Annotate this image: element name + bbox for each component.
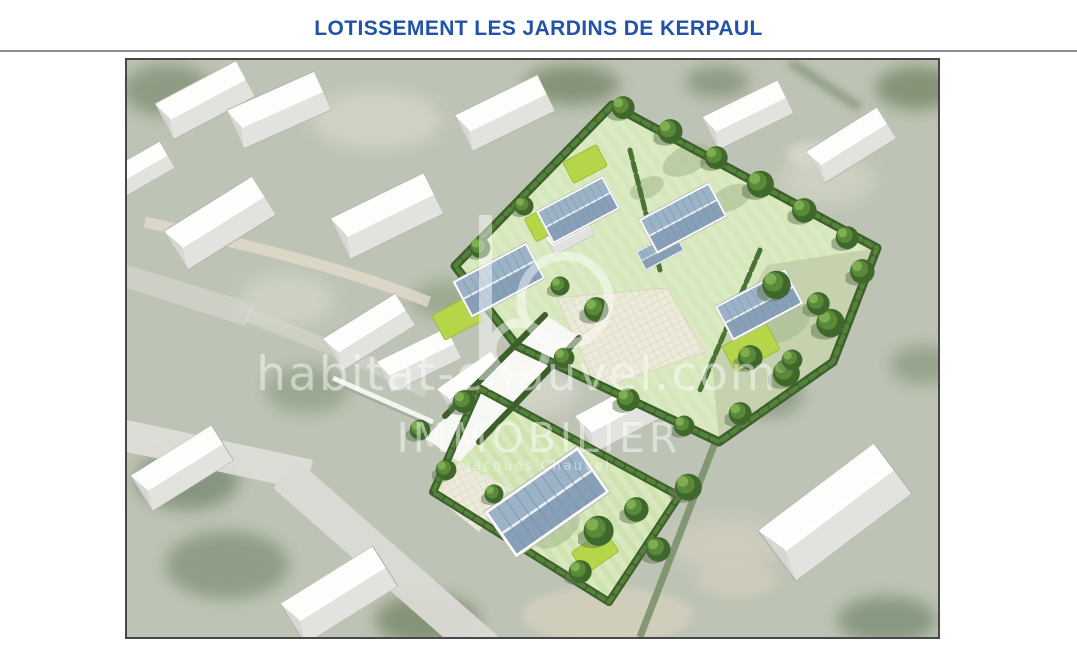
page-header: LOTISSEMENT LES JARDINS DE KERPAUL [0, 0, 1077, 41]
title-divider [0, 50, 1077, 52]
site-plan-image: habitat-chauvel.com IMMOBILIER Jacques C… [125, 58, 940, 639]
page: { "header": { "title": "LOTISSEMENT LES … [0, 0, 1077, 653]
watermark-url: habitat-chauvel.com [256, 347, 777, 402]
page-title: LOTISSEMENT LES JARDINS DE KERPAUL [0, 17, 1077, 41]
watermark-brand: IMMOBILIER [397, 414, 682, 462]
aerial-3d-rendering: habitat-chauvel.com IMMOBILIER Jacques C… [127, 60, 938, 637]
watermark-tagline: Jacques Chauvel [466, 459, 612, 474]
